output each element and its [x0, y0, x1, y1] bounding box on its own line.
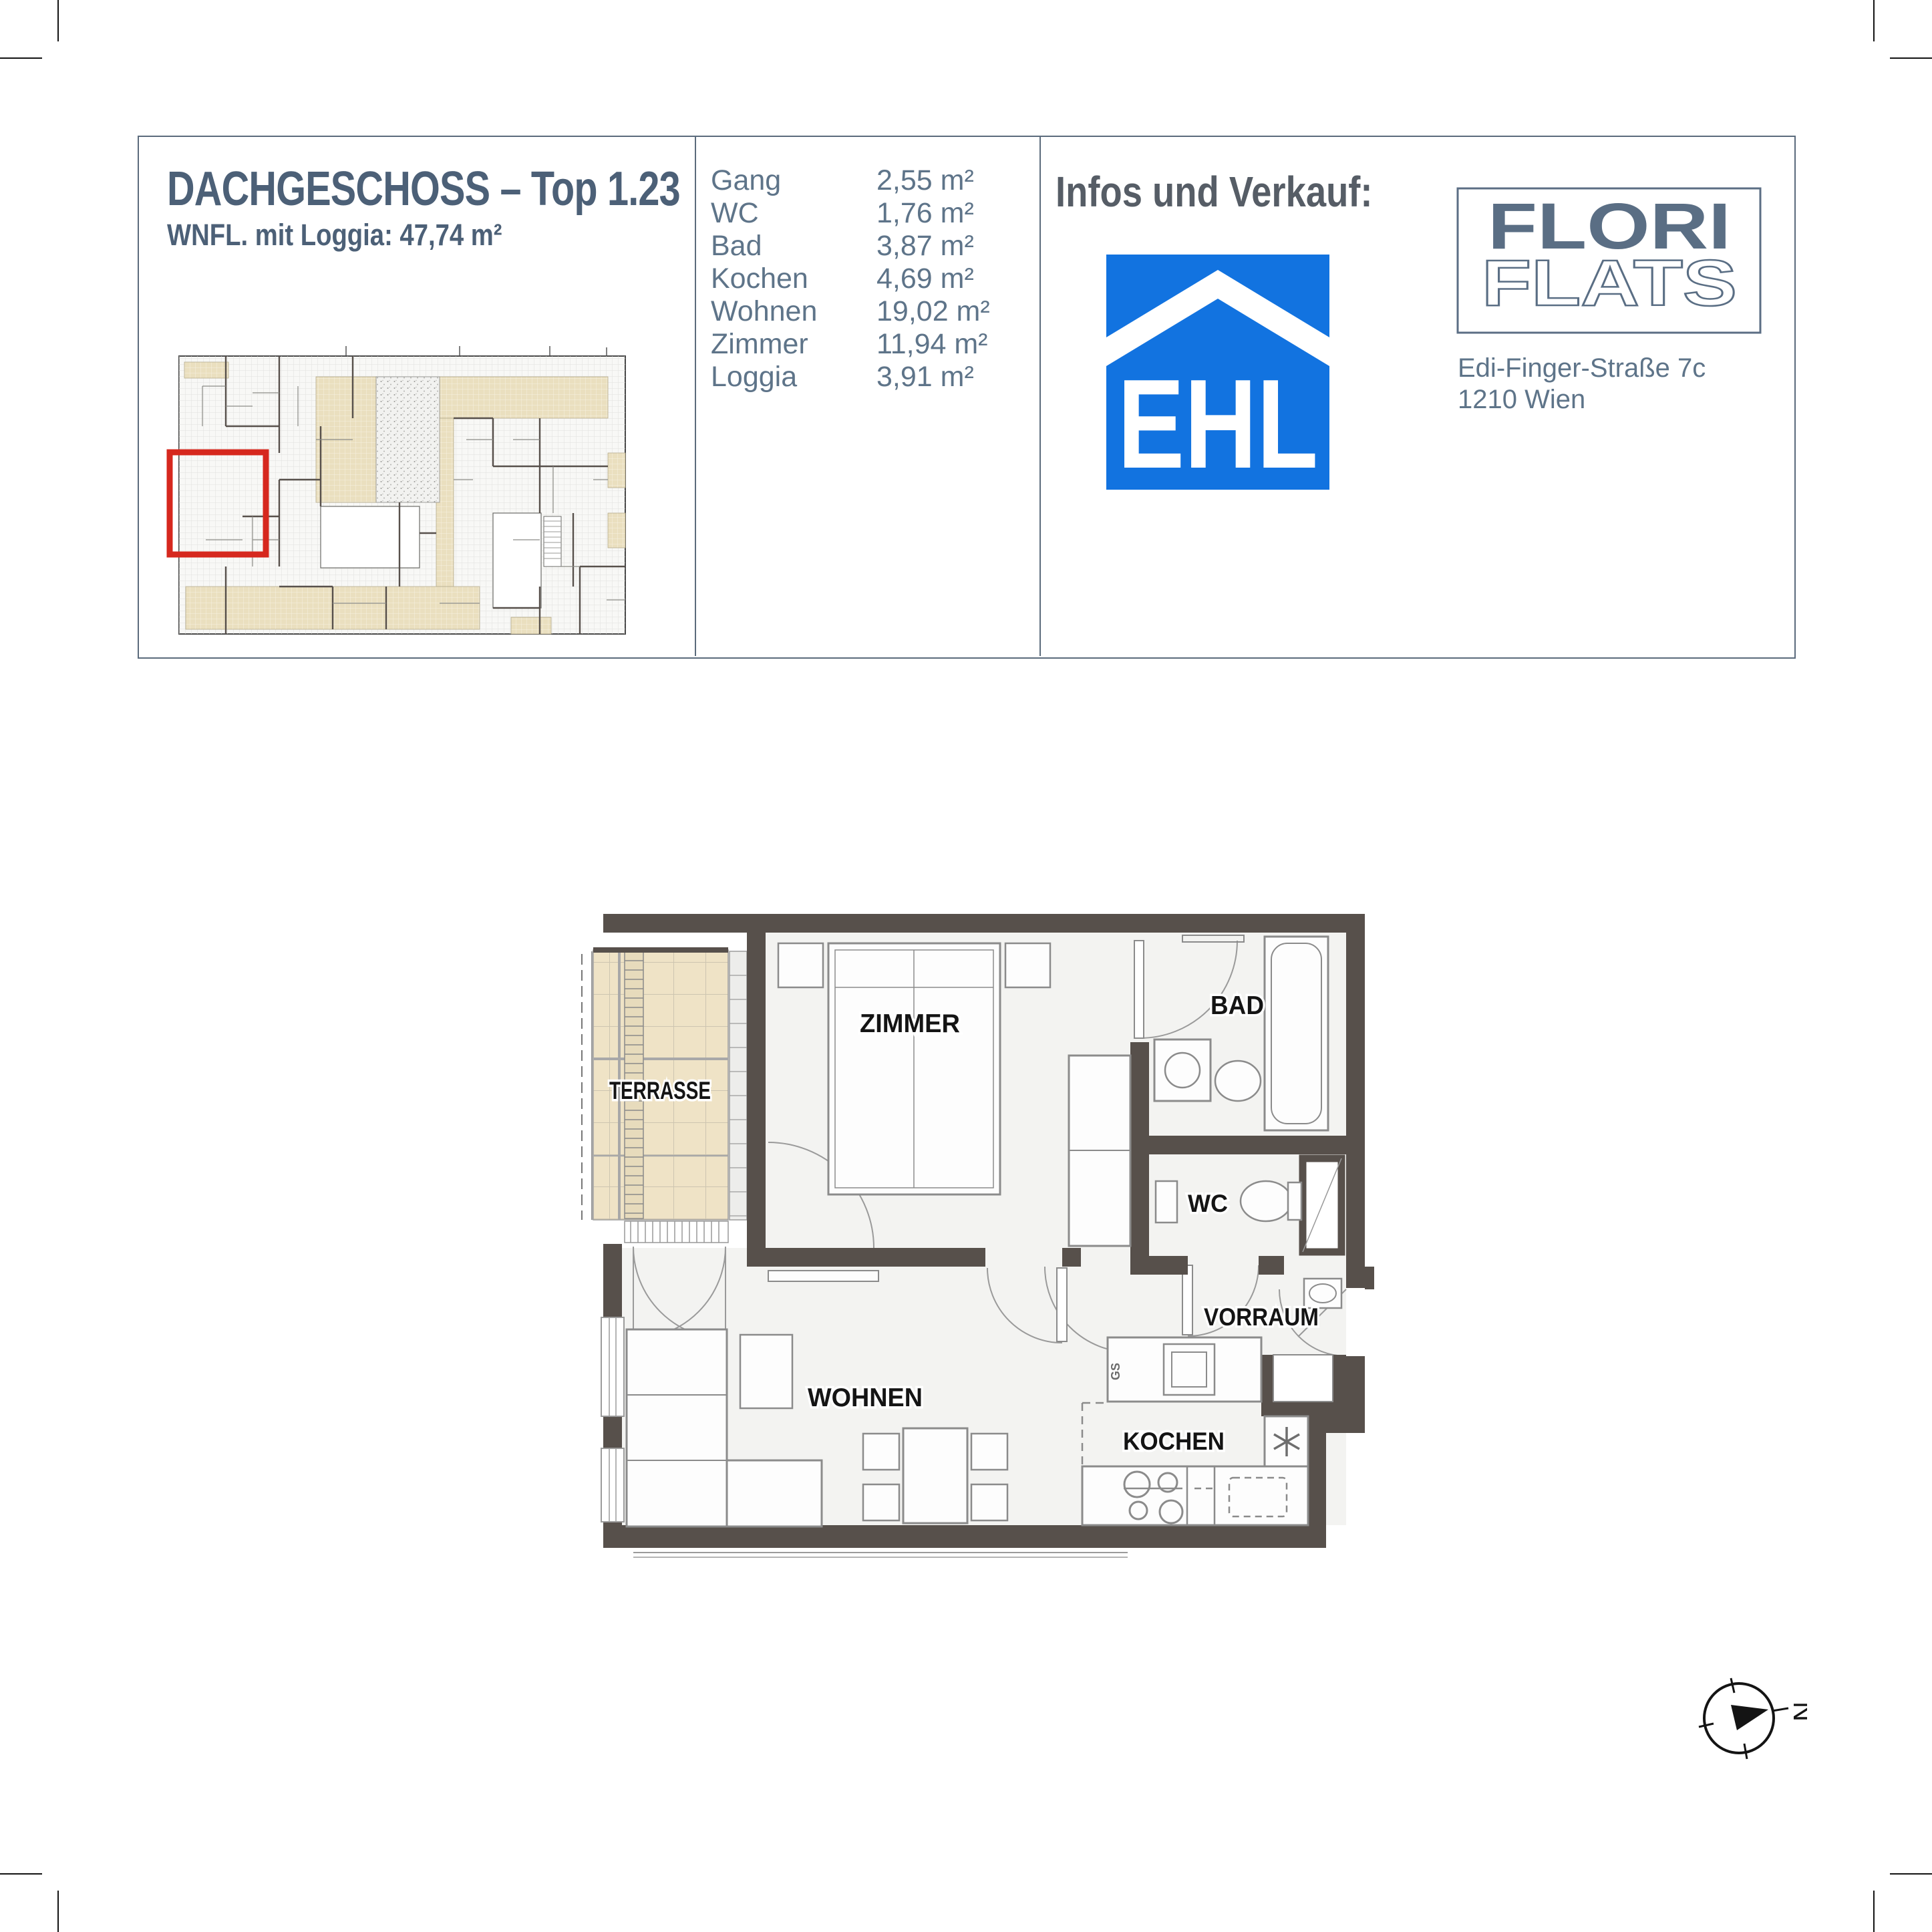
room-label-zimmer: ZIMMER: [860, 1009, 960, 1038]
table-row: Wohnen19,02 m²: [711, 295, 1025, 328]
room-area: 3,87 m²: [876, 230, 974, 263]
room-area: 3,91 m²: [876, 361, 974, 393]
table-row: Bad3,87 m²: [711, 230, 1025, 263]
north-label: N: [1788, 1702, 1807, 1722]
table-row: Kochen4,69 m²: [711, 263, 1025, 295]
table-row: Zimmer11,94 m²: [711, 328, 1025, 361]
room-label: Kochen: [711, 263, 876, 295]
crop-mark: [57, 1891, 59, 1932]
room-label: Gang: [711, 164, 876, 197]
page-title: DACHGESCHOSS – Top 1.23: [167, 162, 680, 216]
north-arrow: [1731, 1705, 1768, 1730]
room-label-terrasse: TERRASSE: [609, 1077, 711, 1104]
table-row: WC1,76 m²: [711, 197, 1025, 230]
room-label: Bad: [711, 230, 876, 263]
room-area: 1,76 m²: [876, 197, 974, 230]
crop-mark: [1873, 0, 1875, 41]
crop-mark: [1890, 1873, 1932, 1875]
room-area: 4,69 m²: [876, 263, 974, 295]
header-divider: [1039, 137, 1041, 656]
overview-miniplan: [166, 346, 627, 637]
room-label-wohnen: WOHNEN: [808, 1384, 923, 1412]
brand-word-flats: FLATS: [1482, 247, 1737, 319]
room-area: 2,55 m²: [876, 164, 974, 197]
floorplan-sheet: DACHGESCHOSS – Top 1.23 WNFL. mit Loggia…: [0, 0, 1932, 1932]
ehl-logo: EHL: [1106, 255, 1329, 490]
crop-mark: [0, 1873, 42, 1875]
address-line1: Edi-Finger-Straße 7c: [1458, 353, 1706, 384]
main-floorplan: TERRASSE ZIMMER BAD WC VORRAUM WOHNEN KO…: [575, 909, 1376, 1567]
sales-heading: Infos und Verkauf:: [1056, 167, 1373, 216]
room-area-table: Gang2,55 m² WC1,76 m² Bad3,87 m² Kochen4…: [711, 164, 1025, 393]
address-line2: 1210 Wien: [1458, 384, 1706, 416]
storage-niche: [1273, 1355, 1333, 1402]
room-label: Loggia: [711, 361, 876, 393]
compass-icon: N: [1694, 1670, 1807, 1770]
room-label-kochen: KOCHEN: [1123, 1428, 1225, 1455]
header-divider: [695, 137, 696, 656]
flori-flats-logo: FLORI FLATS: [1455, 186, 1763, 335]
ehl-logo-text: EHL: [1118, 353, 1318, 490]
room-label-wc: WC: [1188, 1190, 1228, 1217]
crop-mark: [57, 0, 59, 41]
room-area: 19,02 m²: [876, 295, 990, 328]
table-row: Gang2,55 m²: [711, 164, 1025, 197]
sales-address: Edi-Finger-Straße 7c 1210 Wien: [1458, 353, 1706, 416]
room-label: Wohnen: [711, 295, 876, 328]
crop-mark: [0, 57, 42, 59]
room-label: WC: [711, 197, 876, 230]
table-row: Loggia3,91 m²: [711, 361, 1025, 393]
room-area: 11,94 m²: [876, 328, 988, 361]
crop-mark: [1890, 57, 1932, 59]
room-label: Zimmer: [711, 328, 876, 361]
crop-mark: [1873, 1891, 1875, 1932]
room-label-bad: BAD: [1211, 991, 1264, 1020]
page-subtitle: WNFL. mit Loggia: 47,74 m²: [167, 218, 502, 253]
room-label-vorraum: VORRAUM: [1204, 1303, 1319, 1331]
label-dishwasher: GS: [1109, 1363, 1122, 1380]
